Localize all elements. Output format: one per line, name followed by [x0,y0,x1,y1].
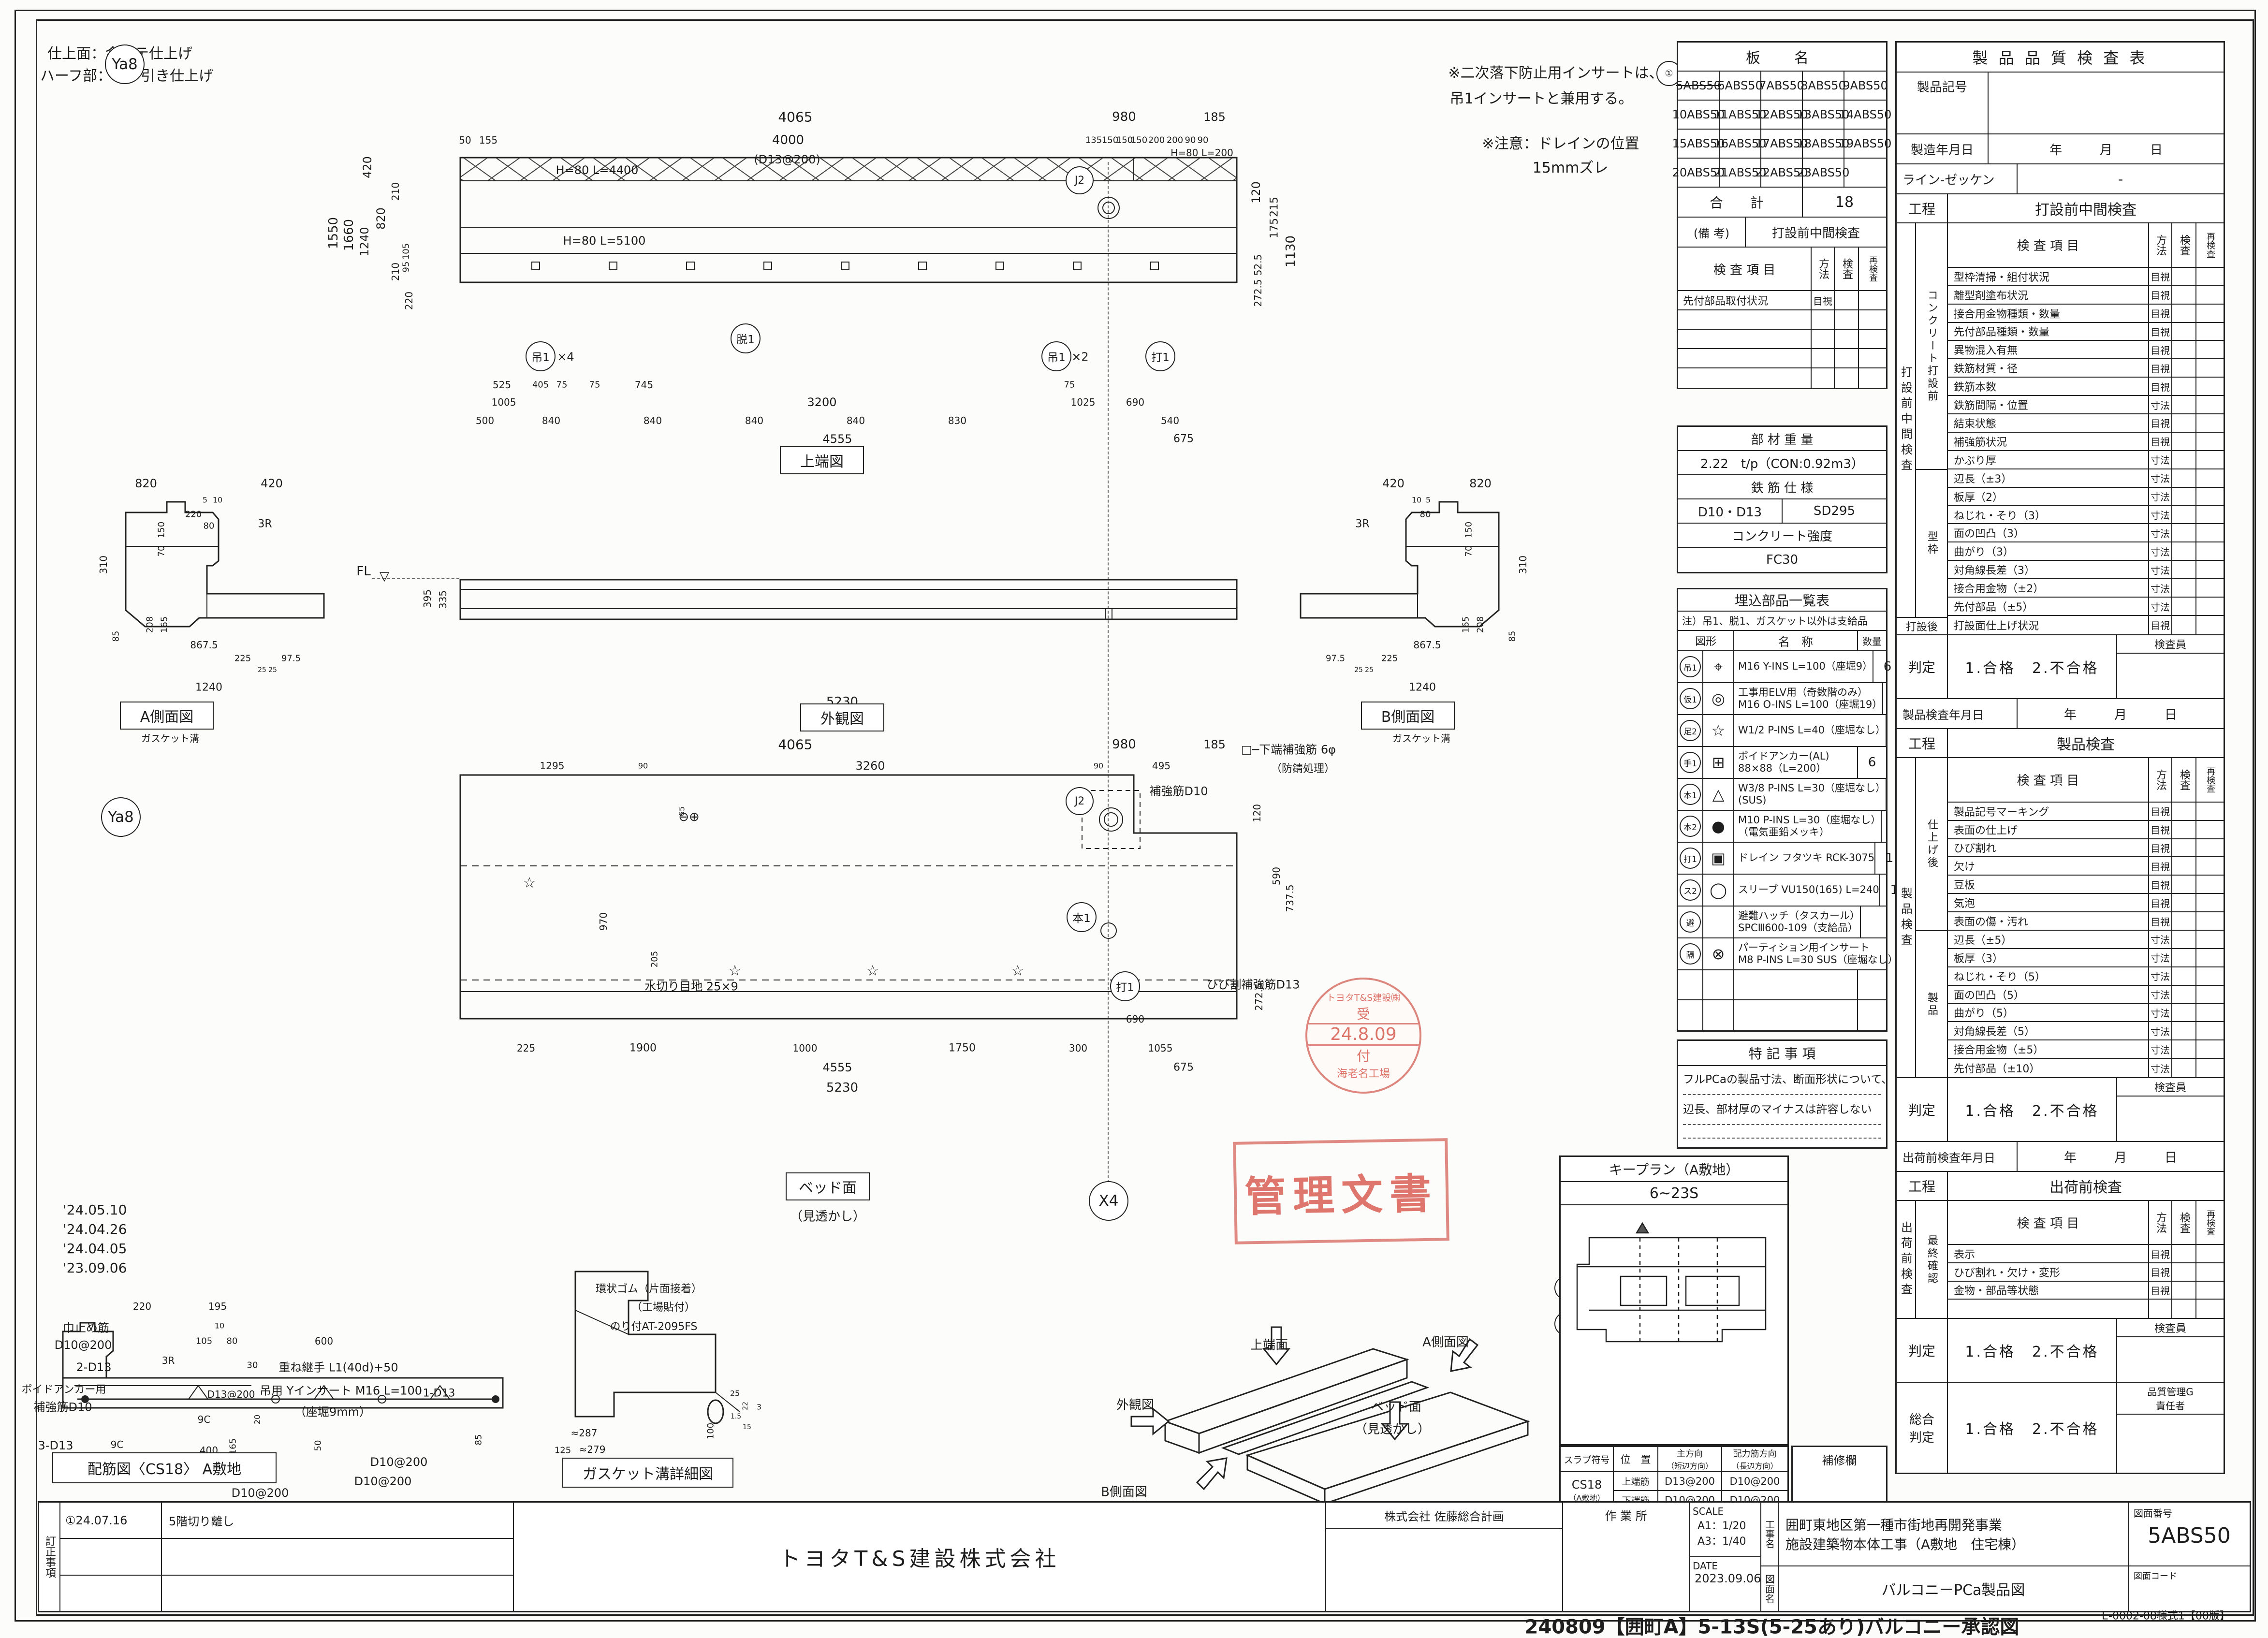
grid-bubble-X4: X4 [1089,1181,1128,1221]
cell: 板厚（3） [1948,949,2149,966]
receipt-stamp-company: トヨタT&S建設㈱ [1327,991,1400,1004]
cell: 寸法 [2149,451,2172,468]
drawing-name-label: 図面名 [1761,1566,1779,1611]
correction-desc: 5階切り離し [162,1503,513,1538]
dim-label: 745 [635,379,653,391]
cell: 年 月 日 [1989,134,2224,163]
dim-label: 4065 [778,737,812,753]
cell [2196,894,2224,911]
material-table: 部 材 重 量2.22 t/p（CON:0.92m3）鉄 筋 仕 様D10・D1… [1677,425,1888,573]
cell: 打設面仕上げ状況 [1948,616,2149,634]
cell: 方法 [1812,248,1835,290]
cell: 位 置 [1614,1447,1658,1471]
cell: かぶり厚 [1948,451,2149,468]
cell: 表面の仕上げ [1948,821,2149,838]
dim-label: D10@200 [370,1455,428,1469]
dim-label: ボイドアンカー用 [21,1381,106,1396]
cell: 目視 [2149,414,2172,432]
grid-bubble-打1: 打1 [1110,971,1140,1001]
cell [2172,341,2196,358]
title-block: 訂正事項①24.07.165階切り離しトヨタT&S建設株式会社株式会社 佐藤総合… [38,1501,2251,1612]
cell: ◯ [1703,875,1734,906]
cell [2172,268,2196,285]
dim-label: 525 [493,379,511,391]
cell [1703,970,1734,999]
cell: 23ABS50 [1803,159,1844,187]
dim-label: 980 [1112,737,1136,752]
cell: 1.合格 2.不合格 [1948,1078,2117,1141]
cell: 寸法 [2149,579,2172,597]
cell [2172,1263,2196,1281]
drawing-number: 5ABS50 [2134,1523,2245,1548]
cell: 出荷前検査年月日 [1897,1142,2018,1171]
cell: スラブ符号 [1561,1447,1614,1471]
view-label: 上端図 [780,446,864,474]
dim-label: 500 [476,415,494,426]
dim-label: 208 [145,616,155,633]
part-name: スリーブ VU150(165) L=240 [1738,884,1879,896]
dim-label: 1240 [195,682,222,694]
receipt-stamp-tsuke: 付 [1357,1046,1370,1065]
dim-label: (D13@200) [754,153,820,166]
correction-date [60,1576,162,1611]
dim-label: 重ね継手 L1(40d)+50 [278,1358,398,1375]
dim-label: 22 [742,1402,749,1410]
cell [2172,598,2196,615]
dim-label: 上端面 [1250,1335,1288,1353]
dim-label: 15 [743,1423,751,1431]
group-label: 仕上げ後 [1916,758,1947,931]
dim-label: 420 [261,477,283,490]
cell: 6~23S [1561,1182,1787,1204]
part-symbol: 避 [1680,911,1701,933]
cell: 9ABS50 [1844,72,1886,100]
dim-label: 85 [1507,631,1518,642]
dim-label: 9C [111,1439,124,1450]
dim-label: 125 [555,1446,571,1456]
cell: 寸法 [2149,1022,2172,1039]
cell: 寸法 [2149,396,2172,413]
cell [1858,1000,1886,1030]
cell: 総合 判定 [1897,1383,1948,1473]
cell: 検査 [2172,1201,2196,1244]
dim-label: 215 [1269,197,1281,217]
dim-label: ベッド面 [1371,1397,1421,1415]
dim-label: D13@200 [207,1389,255,1400]
elevation-view-drawing [459,578,1238,622]
cell [2172,579,2196,597]
grid-bubble-Ya8: Ya8 [101,797,141,837]
dim-label: （防錆処理） [1271,760,1335,775]
part-name: （電気亜鉛メッキ） [1738,826,1829,838]
dim-label: 980 [1112,110,1136,124]
cell: 工程 [1897,1172,1948,1200]
cell: 寸法 [2149,488,2172,505]
cell: 目視 [2149,305,2172,322]
dim-label: 90 [1185,135,1196,146]
builder-name: トヨタT&S建設株式会社 [779,1541,1060,1572]
dim-label: 420 [361,156,374,178]
cell [2196,396,2224,413]
part-name: W3/8 P-INS L=30（座堀なし） [1738,782,1886,794]
correction-desc [162,1539,513,1574]
qc-manager-label: 品質管理G 責任者 [2117,1383,2224,1415]
cell: 寸法 [2149,561,2172,578]
cell: 配力筋方向（長辺方向） [1722,1447,1787,1471]
part-name: パーティション用インサート [1738,942,1870,954]
control-document-stamp: 管理文書 [1233,1138,1449,1244]
cell: ねじれ・そり（5） [1948,967,2149,985]
cell [2196,305,2224,322]
cell: 異物混入有無 [1948,341,2149,358]
cell [2172,1300,2196,1318]
cell [1861,907,1889,937]
cell [2196,986,2224,1003]
correction-date: ①24.07.16 [60,1503,162,1538]
dim-label: 9C [198,1414,211,1425]
cell [2172,451,2196,468]
part-name: ドレイン フタツキ RCK-3075 [1738,852,1874,864]
cell [2172,967,2196,985]
dim-label: 25 [258,666,266,674]
cell [2196,451,2224,468]
dim-label: 310 [98,556,109,574]
cell [2196,616,2224,634]
cell [2172,857,2196,875]
dim-label: 2-D13 [76,1360,112,1374]
view-label: ガスケット溝詳細図 [562,1458,733,1488]
dim-label: ×2 [1071,350,1088,364]
cell: 検 査 項 目 [1948,223,2149,267]
part-symbol: 吊1 [1680,656,1701,677]
cell [1859,330,1886,348]
part-symbol: ス2 [1680,879,1701,901]
cell: 1.合格 2.不合格 [1948,1319,2117,1382]
cell: 検 査 項 目 [1948,1201,2149,1244]
scale-value: A3：1/40 [1693,1533,1757,1548]
cell: 製造年月日 [1897,134,1989,163]
cell: 避 [1678,907,1703,937]
dim-label: 95 [401,262,411,273]
cell: 目視 [2149,821,2172,838]
dim-label: 3R [258,518,272,530]
receipt-stamp-ukecd: 受 [1357,1004,1370,1023]
cell: 補強筋状況 [1948,433,2149,450]
cell: 面の凹凸（5） [1948,986,2149,1003]
section-label: 出荷前検査 [1897,1201,1916,1319]
cell [2196,1059,2224,1077]
dim-label: （見透かし） [790,1207,865,1225]
dim-label: 1130 [1284,235,1298,267]
cell: キープラン（A敷地） [1561,1157,1787,1181]
cell: 表面の傷・汚れ [1948,912,2149,930]
dim-label: 105 [196,1336,212,1346]
cell: 目視 [2149,378,2172,395]
cell: 特 記 事 項 [1678,1041,1886,1065]
cell [2172,542,2196,560]
group-label: 打設後 [1897,617,1947,634]
cell: 辺長（±5） [1948,931,2149,948]
corrections-header: 訂正事項 [39,1503,60,1611]
grid-bubble-打1: 打1 [1145,341,1175,371]
cell: M16 Y-INS L=100（座堀9） [1734,651,1873,682]
dim-label: ≈279 [579,1444,606,1455]
part-name: M16 O-INS L=100（座堀19） [1738,699,1882,711]
dim-label: 840 [847,415,865,426]
cell: 寸法 [2149,967,2172,985]
dim-label: 1900 [629,1042,657,1054]
cell [1859,310,1886,329]
grid-bubble-吊1: 吊1 [1041,341,1071,371]
cell [2196,561,2224,578]
cell: 離型剤塗布状況 [1948,286,2149,304]
quality-inspection-table: 製 品 品 質 検 査 表製品記号製造年月日年 月 日ライン-ゼッケン-工程打設… [1895,41,2225,1474]
dim-label: 120 [1249,181,1263,204]
cell: W1/2 P-INS L=40（座堀なし） [1734,715,1887,746]
section-label: 製品検査 [1897,758,1916,1078]
cell: 品質管理G 責任者 [2117,1383,2224,1473]
cell: D10・D13 [1678,499,1783,523]
cell: 製品記号マーキング [1948,803,2149,820]
cell [2172,469,2196,487]
cell: 結束状態 [1948,414,2149,432]
cell: 検査 [1835,248,1859,290]
dim-label: 巾止め筋 [63,1318,109,1335]
isometric-drawing [1102,1281,1547,1508]
dim-label: 135 [1085,135,1102,146]
dim-label: 80 [227,1336,238,1346]
cell: 目視 [2149,1263,2172,1281]
dim-label: 175 [1269,218,1281,238]
dim-label: 165 [160,616,170,633]
cell [2196,433,2224,450]
cell [2172,524,2196,541]
cell: 打1 [1678,843,1703,874]
cell: D13@200 [1658,1472,1722,1490]
dim-label: D10@200 [232,1486,289,1500]
embedded-parts-table: 埋込部品一覧表注）吊1、脱1、ガスケット以外は支給品図形名 称数量吊1⌖M16 … [1677,588,1888,1032]
cell: 工程 [1897,194,1948,222]
dim-label: ☆ [1011,963,1024,980]
insert-note-1: ※二次落下防止用インサートは、 [1448,65,1663,82]
cell: 目視 [1812,291,1835,309]
cell: 寸法 [2149,1059,2172,1077]
cell: 鉄 筋 仕 様 [1678,475,1886,498]
cell: 検 査 項 目 [1678,248,1812,290]
dim-label: 675 [1173,1062,1194,1074]
cell: 寸法 [2149,986,2172,1003]
part-symbol: 仮1 [1680,688,1701,709]
cell: 目視 [2149,803,2172,820]
cell [1812,330,1835,348]
cell: 豆板 [1948,876,2149,893]
grid-bubble-脱1: 脱1 [731,323,761,353]
cell [1678,310,1812,329]
date-label: DATE [1693,1560,1757,1572]
cell [2172,821,2196,838]
cell: 仮1 [1678,683,1703,714]
section-a-drawing [97,488,338,691]
cell: 目視 [2149,341,2172,358]
dim-label: 5 [203,496,207,505]
dim-label: 70 [157,546,167,557]
dim-label: 25 [1354,666,1363,674]
cell: 先付部品取付状況 [1678,291,1812,309]
dim-label: 737.5 [1284,884,1296,912]
part-name: M16 Y-INS L=100（座堀9） [1738,660,1873,673]
cell [2196,839,2224,857]
cell: 5ABS50 [1678,72,1720,100]
cell [2196,876,2224,893]
cell [2172,1004,2196,1022]
cell: 目視 [2149,894,2172,911]
cell [1835,349,1859,367]
cell: 接合用金物種類・数量 [1948,305,2149,322]
drawing-code-label: 図面コード [2134,1569,2245,1582]
group-label: 型枠 [1916,470,1947,617]
dim-label: 3-D13 [38,1439,73,1452]
dim-label: 4555 [822,1061,852,1074]
cell [2172,949,2196,966]
cell: △ [1703,779,1734,810]
cell: 製 品 品 質 検 査 表 [1897,43,2224,72]
cell: 検 査 項 目 [1948,758,2149,802]
project-name-line: 施設建築物本体工事（A敷地 住宅棟） [1785,1534,2128,1553]
cell: 製品記号 [1897,73,1989,133]
cell: 金物・部品等状態 [1948,1282,2149,1299]
form-code: E-0002-08様式1【00版】 [2102,1611,2230,1623]
cell: 寸法 [2149,598,2172,615]
cell: 検査員 [2117,635,2224,698]
cell: 目視 [2149,1245,2172,1262]
cell: 製品検査年月日 [1897,699,2018,728]
dim-label: 225 [234,654,251,664]
cell: 18 [1803,188,1886,217]
cell: 目視 [2149,268,2172,285]
drain-note-1: ※注意：ドレインの位置 [1482,136,1639,152]
revision-date: '24.04.05 [63,1241,127,1257]
dim-label: 3R [162,1355,175,1366]
site-label: 作 業 所 [1563,1503,1689,1523]
cell [2172,506,2196,524]
cell [2172,414,2196,432]
cell: 埋込部品一覧表 [1678,589,1886,611]
cell: 目視 [2149,1282,2172,1299]
dim-label: 10 [1412,496,1421,505]
dim-label: 210 [390,263,401,281]
dim-label: 4555 [822,432,852,446]
dim-label: 272.5 [1253,983,1265,1010]
dim-label: 970 [598,912,609,931]
dim-label: 185 [1203,738,1226,751]
cell: 鉄筋本数 [1948,378,2149,395]
cell [2196,1040,2224,1058]
cell [2172,894,2196,911]
cell [2172,986,2196,1003]
dim-label: 495 [1152,760,1171,772]
cell: 欠け [1948,857,2149,875]
grid-bubble-J2: J2 [1066,166,1094,194]
dim-label: 200 [1148,135,1165,146]
cell: (備 考) [1678,218,1746,247]
cell: 図形 [1678,631,1734,650]
dim-label: 75 [556,380,568,390]
dim-label: 105 [401,243,411,260]
cell: 方法 [2149,223,2172,267]
dim-label: 830 [948,415,966,426]
dim-label: （工場貼付） [631,1299,695,1314]
dim-label: 150 [157,522,167,538]
cell [2196,803,2224,820]
cell: 隔 [1678,938,1703,969]
dim-label: 840 [644,415,662,426]
cell: 目視 [2149,839,2172,857]
cell: 判定 [1897,635,1948,698]
drawing-name: バルコニーPCa製品図 [1779,1566,2128,1611]
dim-label: 540 [1161,415,1179,426]
dim-label: 75 [589,380,600,390]
cell: 寸法 [2149,949,2172,966]
dim-label: 675 [1173,433,1194,445]
dim-label: ☆ [866,963,879,980]
cell: 接合用金物（±2） [1948,579,2149,597]
dim-label: 52.5 [1252,254,1264,276]
cell [2196,414,2224,432]
cell [2196,286,2224,304]
dim-label: （座堀9mm） [294,1403,371,1419]
dim-label: 208 [1476,616,1486,633]
cell [1835,291,1859,309]
cell [2196,857,2224,875]
drain-note-2: 15mmズレ [1533,160,1609,176]
keyplan-drawing [1563,1209,1792,1368]
dim-label: 吊用 Yインサート M16 L=100 [260,1381,422,1398]
dim-label: ⊖⊕ [678,810,700,824]
group-label: 最終確認 [1916,1201,1947,1319]
cell [1859,368,1886,388]
dim-label: 220 [133,1301,151,1312]
dim-label: 100 [706,1423,716,1439]
special-notes: 特 記 事 項フルPCaの製品寸法、断面形状について、辺長、部材厚のマイナスは許… [1677,1039,1888,1149]
cell: 板 名 [1678,43,1886,71]
dim-label: 1240 [358,227,371,256]
cell: 判定 [1897,1319,1948,1382]
cell: 足2 [1678,715,1703,746]
cell: 出荷前検査 [1948,1172,2224,1200]
dim-label: 80 [204,521,215,531]
dim-label: 195 [208,1301,227,1312]
cell: 6ABS50 [1720,72,1761,100]
dim-label: ▽ [380,569,389,584]
cell: 打設前中間検査 [1746,218,1886,247]
view-label: 配筋図〈CS18〉 A敷地 [52,1452,277,1483]
cell: 寸法 [2149,1040,2172,1058]
dim-label: 97.5 [1326,654,1345,664]
part-name: ボイドアンカー(AL) [1738,750,1829,762]
cell: スリーブ VU150(165) L=240 [1734,875,1880,906]
cell [2196,1022,2224,1039]
dim-label: ガスケット溝 [1392,731,1450,745]
cell [2172,1022,2196,1039]
dim-label: H=80 L=200 [1171,147,1233,159]
cell: 避難ハッチ（タスカール）SPCⅢ600-109（支給品） [1734,907,1861,937]
drawing-sheet: 仕上面：金ゴテ仕上げ ハーフ部：ハケ引き仕上げ ※二次落下防止用インサートは、 … [0,0,2268,1638]
cell [2196,378,2224,395]
dim-label: 3200 [807,395,836,409]
cell [1678,368,1812,388]
cell: 18ABS50 [1803,130,1844,158]
part-name: 工事用ELV用（奇数階のみ） [1738,687,1868,699]
